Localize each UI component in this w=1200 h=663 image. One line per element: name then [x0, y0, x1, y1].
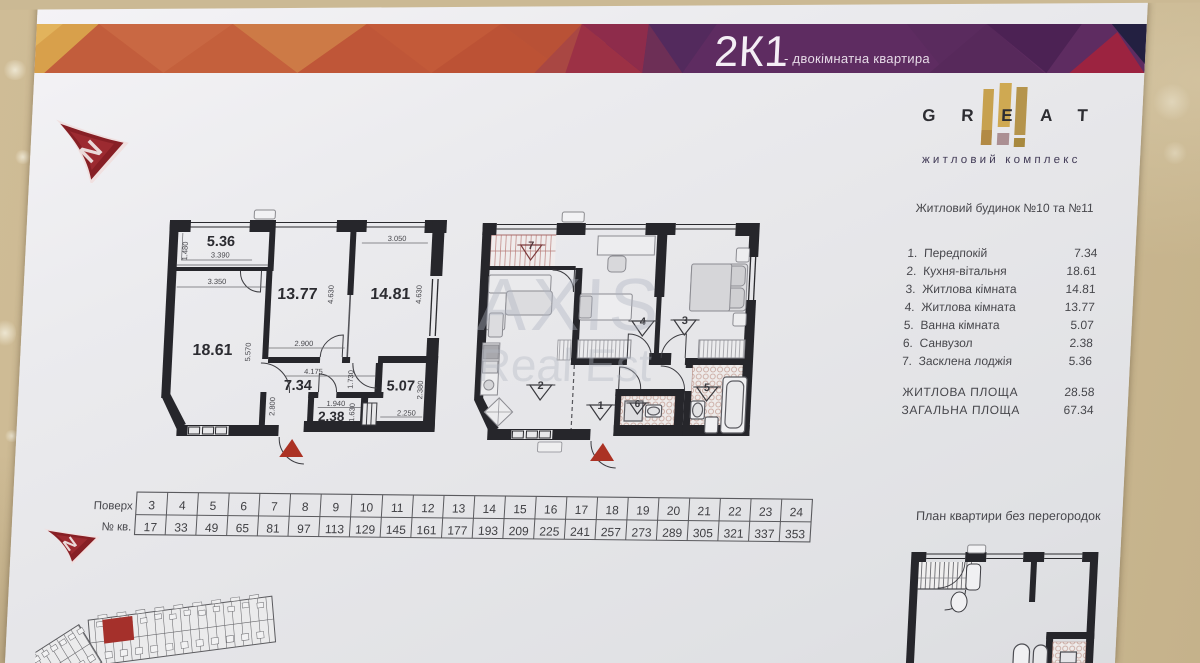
svg-text:273: 273 [631, 525, 652, 539]
svg-text:1.940: 1.940 [326, 399, 345, 408]
svg-text:97: 97 [297, 522, 312, 536]
svg-text:305: 305 [692, 526, 713, 540]
svg-text:№ кв.: № кв. [101, 521, 132, 533]
svg-text:4: 4 [179, 499, 187, 513]
svg-text:2К1: 2К1 [713, 28, 790, 73]
svg-text:337: 337 [754, 527, 775, 541]
svg-text:17: 17 [574, 503, 589, 517]
svg-text:145: 145 [385, 523, 406, 537]
svg-text:33: 33 [174, 521, 189, 535]
svg-text:4.630: 4.630 [414, 285, 424, 304]
svg-text:18: 18 [605, 503, 620, 517]
svg-text:20: 20 [666, 504, 681, 518]
svg-text:3.050: 3.050 [388, 234, 407, 243]
svg-text:6: 6 [634, 399, 641, 410]
svg-text:177: 177 [447, 523, 468, 537]
svg-text:2.380: 2.380 [415, 381, 425, 400]
svg-text:7: 7 [528, 240, 535, 252]
svg-text:17: 17 [143, 520, 158, 534]
svg-text:5: 5 [209, 499, 217, 513]
svg-text:R: R [961, 106, 974, 125]
svg-text:5.07: 5.07 [386, 379, 415, 395]
svg-text:353: 353 [785, 527, 806, 541]
svg-text:3: 3 [148, 498, 156, 512]
svg-text:5.570: 5.570 [243, 343, 253, 362]
svg-text:16: 16 [544, 503, 559, 517]
svg-text:129: 129 [355, 522, 376, 536]
svg-text:- двокімнатна квартира: - двокімнатна квартира [784, 51, 931, 66]
svg-text:113: 113 [325, 522, 345, 536]
svg-text:321: 321 [723, 526, 744, 540]
svg-text:18.61: 18.61 [192, 342, 233, 359]
svg-text:161: 161 [416, 523, 437, 537]
svg-text:A: A [1040, 106, 1053, 125]
svg-text:6: 6 [240, 499, 248, 513]
svg-text:193: 193 [478, 524, 499, 538]
svg-text:12: 12 [421, 501, 436, 515]
svg-text:1.630: 1.630 [347, 403, 357, 422]
svg-text:14: 14 [482, 502, 497, 516]
svg-text:T: T [1077, 106, 1089, 125]
svg-text:2.250: 2.250 [397, 409, 416, 418]
svg-text:7: 7 [271, 500, 279, 514]
svg-text:2.38: 2.38 [318, 409, 345, 424]
svg-text:2.900: 2.900 [294, 339, 313, 348]
svg-text:Поверх: Поверх [93, 500, 133, 512]
svg-text:1.480: 1.480 [180, 242, 190, 261]
svg-text:225: 225 [539, 524, 560, 538]
svg-text:22: 22 [728, 504, 743, 518]
svg-text:289: 289 [662, 526, 683, 540]
svg-text:257: 257 [600, 525, 621, 539]
svg-text:8: 8 [301, 500, 309, 514]
svg-text:13.77: 13.77 [277, 286, 318, 303]
svg-text:23: 23 [759, 505, 774, 519]
svg-text:7.34: 7.34 [283, 378, 312, 394]
svg-text:житловий комплекс: житловий комплекс [922, 154, 1081, 166]
svg-text:24: 24 [789, 505, 804, 519]
svg-text:19: 19 [636, 503, 651, 517]
svg-text:G: G [922, 106, 936, 125]
svg-text:21: 21 [697, 504, 712, 518]
svg-text:49: 49 [205, 521, 220, 535]
svg-text:15: 15 [513, 502, 528, 516]
svg-text:1.730: 1.730 [346, 370, 356, 389]
svg-text:65: 65 [235, 521, 250, 535]
svg-text:5.36: 5.36 [206, 234, 235, 250]
svg-text:13: 13 [452, 502, 467, 516]
svg-text:3.350: 3.350 [207, 277, 226, 286]
svg-text:81: 81 [266, 522, 281, 536]
svg-text:11: 11 [391, 501, 405, 515]
svg-text:209: 209 [508, 524, 529, 538]
svg-text:10: 10 [359, 501, 374, 515]
svg-text:E: E [1001, 106, 1013, 125]
svg-text:4.630: 4.630 [326, 285, 336, 304]
svg-text:4.175: 4.175 [304, 367, 323, 376]
svg-text:1: 1 [597, 400, 604, 412]
svg-text:241: 241 [570, 525, 591, 539]
svg-text:3.390: 3.390 [211, 251, 230, 260]
svg-text:14.81: 14.81 [370, 286, 411, 303]
svg-text:9: 9 [332, 500, 340, 514]
svg-text:2.800: 2.800 [267, 397, 277, 416]
